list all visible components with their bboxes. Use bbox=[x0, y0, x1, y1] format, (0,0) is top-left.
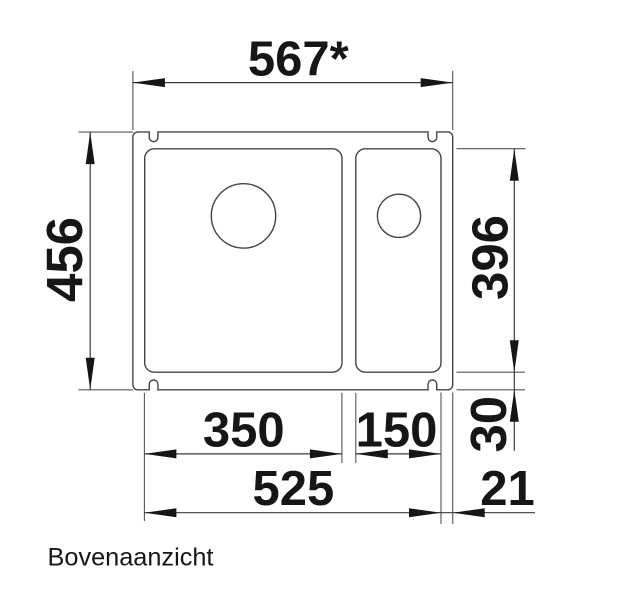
svg-text:Bovenaanzicht: Bovenaanzicht bbox=[48, 544, 214, 572]
svg-text:396: 396 bbox=[462, 215, 519, 300]
svg-text:525: 525 bbox=[253, 462, 335, 516]
svg-text:30: 30 bbox=[460, 396, 517, 453]
svg-text:350: 350 bbox=[203, 403, 285, 457]
svg-text:567*: 567* bbox=[248, 32, 350, 86]
svg-text:150: 150 bbox=[356, 403, 438, 457]
svg-text:21: 21 bbox=[480, 462, 535, 516]
svg-text:456: 456 bbox=[36, 217, 93, 302]
